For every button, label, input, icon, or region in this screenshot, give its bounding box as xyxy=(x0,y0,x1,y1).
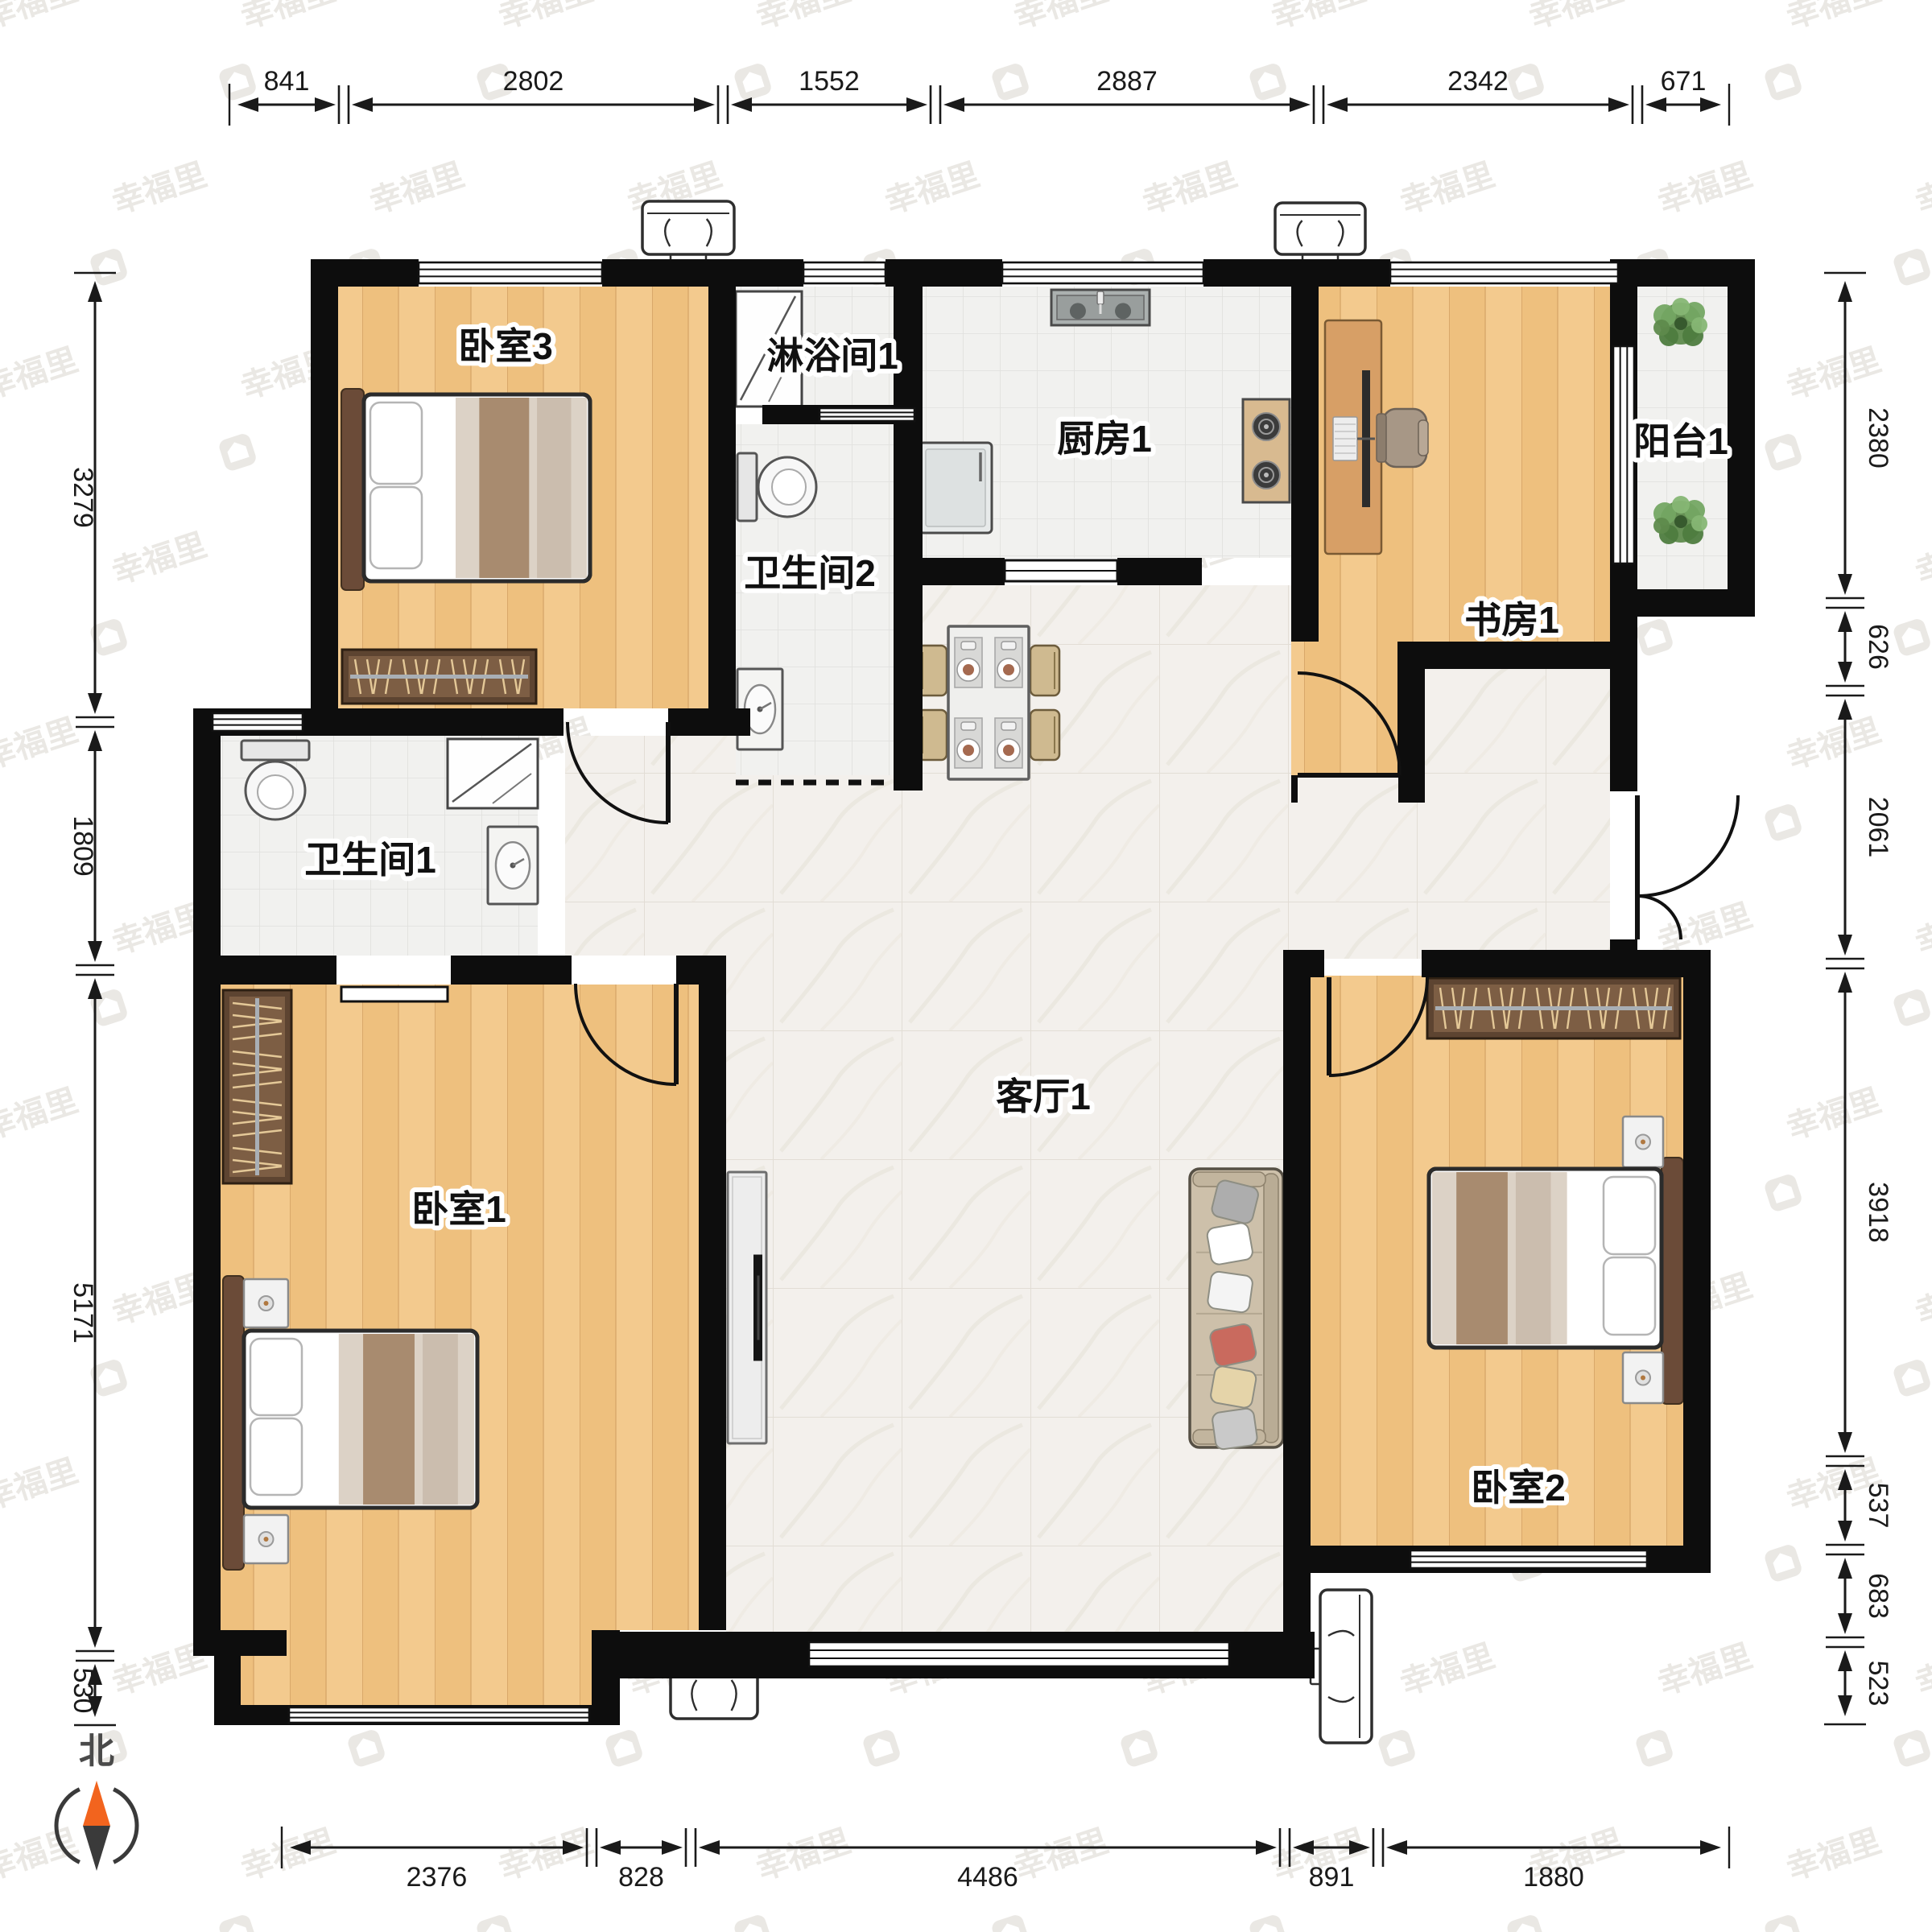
kitchen-pass-window xyxy=(1005,560,1117,581)
svg-text:2802: 2802 xyxy=(503,66,564,97)
living-sofa xyxy=(1190,1169,1283,1450)
svg-text:530: 530 xyxy=(68,1668,98,1714)
svg-text:2376: 2376 xyxy=(407,1862,468,1893)
bathroom-1-shower xyxy=(448,739,538,808)
bathroom-1-toilet xyxy=(242,741,309,819)
bathroom-1-sliding-door xyxy=(341,987,448,1001)
balcony-plant-2 xyxy=(1653,496,1707,544)
svg-text:3918: 3918 xyxy=(1863,1182,1893,1243)
svg-text:2342: 2342 xyxy=(1447,66,1509,97)
svg-text:3279: 3279 xyxy=(68,467,98,528)
bathroom-1-sink xyxy=(488,827,538,904)
svg-text:828: 828 xyxy=(618,1862,664,1893)
svg-text:5171: 5171 xyxy=(68,1282,98,1344)
kitchen-stove xyxy=(1243,399,1290,502)
svg-text:1880: 1880 xyxy=(1523,1862,1584,1893)
bathroom-1-window xyxy=(213,713,303,731)
svg-text:537: 537 xyxy=(1863,1483,1893,1529)
bedroom-2-wardrobe xyxy=(1427,978,1680,1038)
bathroom-1-label: 卫生间1 xyxy=(304,839,436,881)
kitchen-1-label: 厨房1 xyxy=(1057,418,1152,460)
bedroom-1-bay-window xyxy=(289,1707,589,1723)
study-1-label: 书房1 xyxy=(1464,599,1559,641)
svg-text:4486: 4486 xyxy=(957,1862,1018,1893)
kitchen-fridge xyxy=(919,443,992,533)
svg-text:2380: 2380 xyxy=(1863,407,1893,469)
bedroom-2-window xyxy=(1410,1550,1647,1568)
bedroom-3-window xyxy=(419,262,602,283)
kitchen-sink xyxy=(1051,290,1150,325)
bathroom-2-toilet xyxy=(737,453,816,521)
ac-unit-right xyxy=(1311,1590,1372,1743)
corridor-a-floor xyxy=(565,736,736,956)
bedroom-3-label: 卧室3 xyxy=(458,325,553,367)
svg-text:891: 891 xyxy=(1309,1862,1355,1893)
svg-text:841: 841 xyxy=(264,66,310,97)
bedroom-3-wardrobe xyxy=(342,650,536,704)
compass-north-label: 北 xyxy=(79,1732,114,1771)
svg-text:626: 626 xyxy=(1863,624,1893,670)
living-tv-stand xyxy=(728,1172,766,1443)
bedroom-2-label: 卧室2 xyxy=(1471,1467,1566,1509)
bedroom-1-label: 卧室1 xyxy=(411,1188,506,1230)
ac-unit-top-2 xyxy=(1275,203,1365,264)
svg-text:2887: 2887 xyxy=(1096,66,1158,97)
floor-plan-canvas: 幸福里幸福里幸福里幸福里幸福里幸福里幸福里幸福里幸福里幸福里幸福里幸福里幸福里幸… xyxy=(0,0,1932,1932)
study-balcony-window xyxy=(1613,346,1634,563)
svg-text:523: 523 xyxy=(1863,1661,1893,1707)
svg-text:1552: 1552 xyxy=(799,66,860,97)
shower-1-label: 淋浴间1 xyxy=(766,335,898,377)
living-1-window xyxy=(809,1642,1229,1666)
balcony-plant-1 xyxy=(1653,298,1707,346)
study-alcove-floor xyxy=(1291,642,1397,775)
ac-unit-top-1 xyxy=(642,201,734,264)
floor-plan-page: 幸福里幸福里幸福里幸福里幸福里幸福里幸福里幸福里幸福里幸福里幸福里幸福里幸福里幸… xyxy=(0,0,1932,1932)
svg-text:683: 683 xyxy=(1863,1573,1893,1619)
study-1-window xyxy=(1390,262,1618,283)
corridor-b-floor xyxy=(736,775,923,956)
shower-partition-window xyxy=(819,408,914,421)
shower-1-window xyxy=(803,262,885,283)
bedroom-1-bay-floor xyxy=(241,1630,592,1705)
bedroom-1-wardrobe xyxy=(223,990,291,1183)
svg-text:2061: 2061 xyxy=(1863,797,1893,858)
balcony-1-label: 阳台1 xyxy=(1633,420,1728,462)
bedroom-3-bed xyxy=(341,389,590,590)
living-1-label: 客厅1 xyxy=(996,1075,1091,1117)
svg-text:671: 671 xyxy=(1661,66,1707,97)
bathroom-2-label: 卫生间2 xyxy=(744,552,876,594)
kitchen-1-window xyxy=(1002,262,1203,283)
svg-text:1809: 1809 xyxy=(68,815,98,877)
